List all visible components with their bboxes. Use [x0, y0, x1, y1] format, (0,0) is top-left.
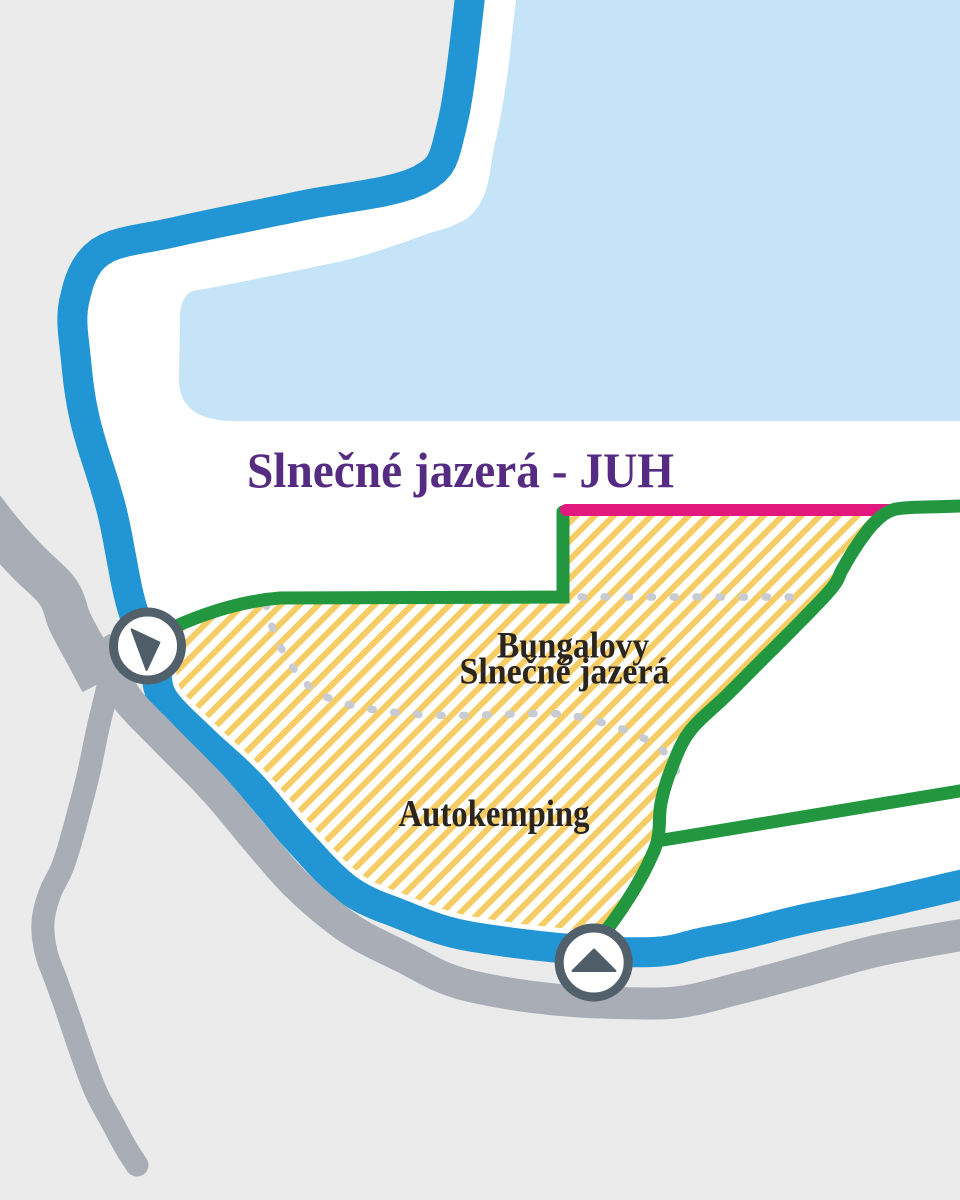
svg-text:Autokemping: Autokemping	[399, 793, 590, 835]
svg-text:Slnečné jazerá - JUH: Slnečné jazerá - JUH	[247, 442, 674, 498]
svg-text:Slnečné jazerá: Slnečné jazerá	[460, 652, 670, 693]
